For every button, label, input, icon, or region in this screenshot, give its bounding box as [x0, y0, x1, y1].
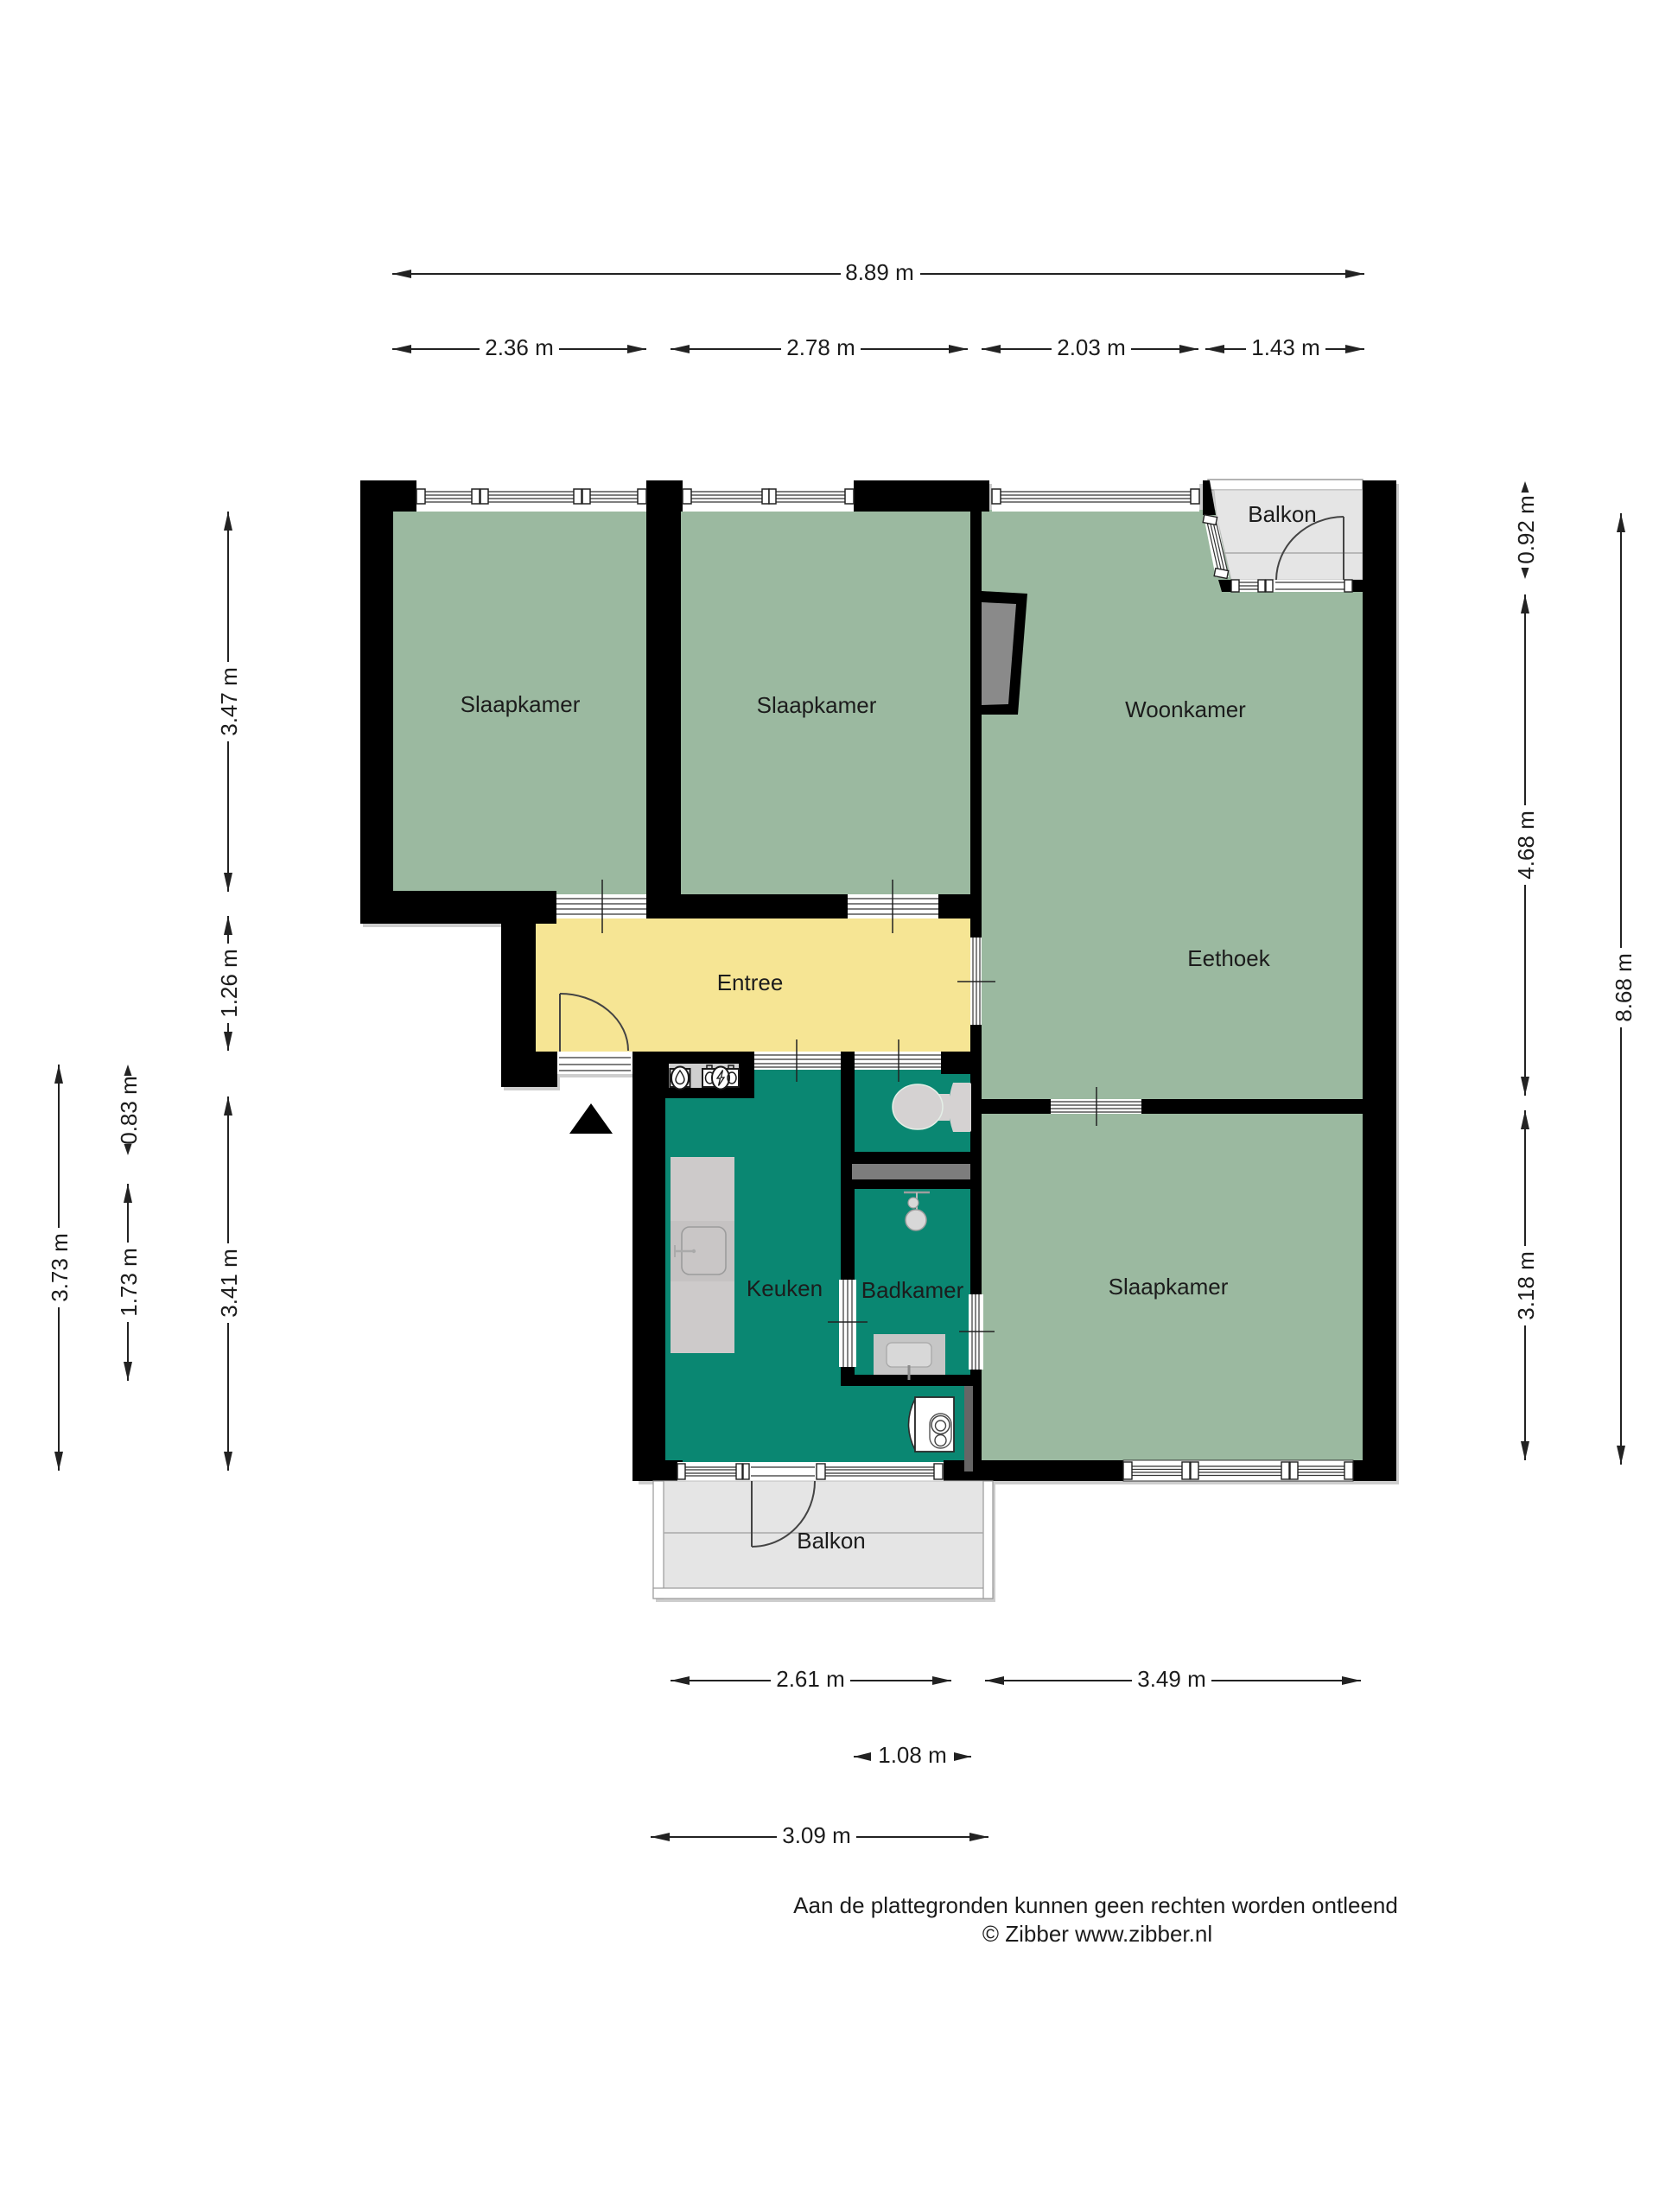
svg-text:0.83 m: 0.83 m	[116, 1076, 142, 1145]
svg-text:2.61 m: 2.61 m	[776, 1666, 845, 1692]
svg-text:2.78 m: 2.78 m	[786, 334, 855, 360]
svg-text:3.09 m: 3.09 m	[782, 1822, 851, 1848]
svg-text:1.08 m: 1.08 m	[878, 1742, 947, 1768]
svg-text:Balkon: Balkon	[797, 1528, 866, 1554]
svg-text:0.92 m: 0.92 m	[1513, 495, 1539, 564]
svg-text:8.68 m: 8.68 m	[1611, 953, 1637, 1022]
svg-text:Entree: Entree	[717, 969, 784, 995]
svg-text:1.26 m: 1.26 m	[216, 949, 242, 1018]
svg-text:8.89 m: 8.89 m	[845, 259, 914, 285]
svg-text:3.73 m: 3.73 m	[47, 1233, 73, 1302]
svg-text:3.49 m: 3.49 m	[1137, 1666, 1206, 1692]
svg-text:Badkamer: Badkamer	[861, 1277, 964, 1303]
svg-text:4.68 m: 4.68 m	[1513, 810, 1539, 880]
svg-text:3.18 m: 3.18 m	[1513, 1251, 1539, 1320]
svg-text:2.03 m: 2.03 m	[1057, 334, 1126, 360]
svg-text:Aan de plattegronden kunnen ge: Aan de plattegronden kunnen geen rechten…	[793, 1892, 1398, 1918]
svg-text:Slaapkamer: Slaapkamer	[461, 691, 581, 717]
svg-text:Slaapkamer: Slaapkamer	[757, 692, 877, 718]
svg-text:Woonkamer: Woonkamer	[1125, 696, 1246, 722]
svg-text:Keuken: Keuken	[747, 1275, 823, 1301]
svg-text:3.41 m: 3.41 m	[216, 1249, 242, 1318]
svg-text:Eethoek: Eethoek	[1187, 945, 1270, 971]
svg-text:3.47 m: 3.47 m	[216, 667, 242, 736]
svg-text:1.73 m: 1.73 m	[116, 1248, 142, 1317]
svg-text:© Zibber www.zibber.nl: © Zibber www.zibber.nl	[982, 1921, 1212, 1947]
svg-text:Balkon: Balkon	[1248, 501, 1317, 527]
svg-text:Slaapkamer: Slaapkamer	[1109, 1274, 1229, 1300]
svg-text:1.43 m: 1.43 m	[1251, 334, 1320, 360]
svg-text:2.36 m: 2.36 m	[485, 334, 554, 360]
